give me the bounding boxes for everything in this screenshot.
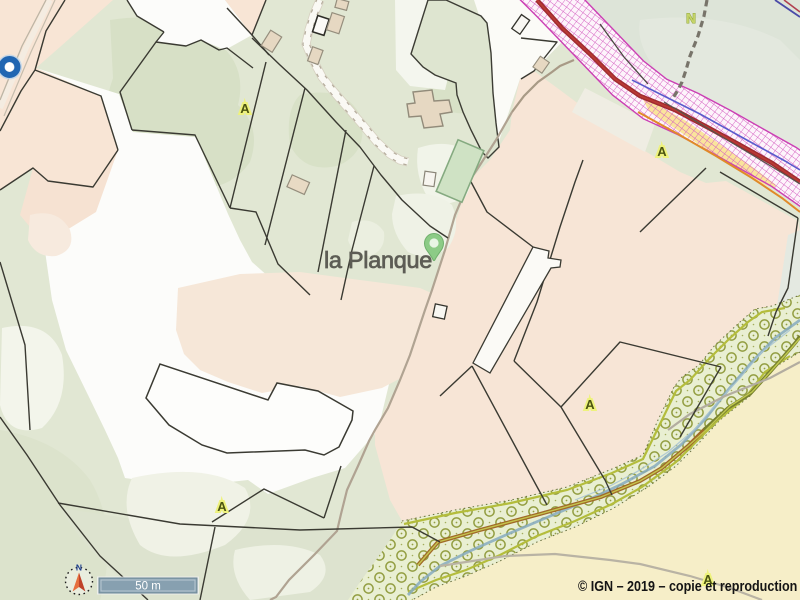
svg-text:A: A — [217, 499, 227, 514]
svg-text:50 m: 50 m — [135, 581, 161, 593]
svg-text:A: A — [657, 144, 667, 159]
svg-text:A: A — [240, 101, 250, 116]
svg-text:N: N — [76, 563, 82, 573]
svg-text:la Planque: la Planque — [324, 247, 432, 273]
svg-text:A: A — [585, 397, 595, 412]
svg-text:N: N — [686, 11, 696, 26]
svg-text:© IGN – 2019 – copie et reprod: © IGN – 2019 – copie et reproduction in — [578, 579, 800, 595]
